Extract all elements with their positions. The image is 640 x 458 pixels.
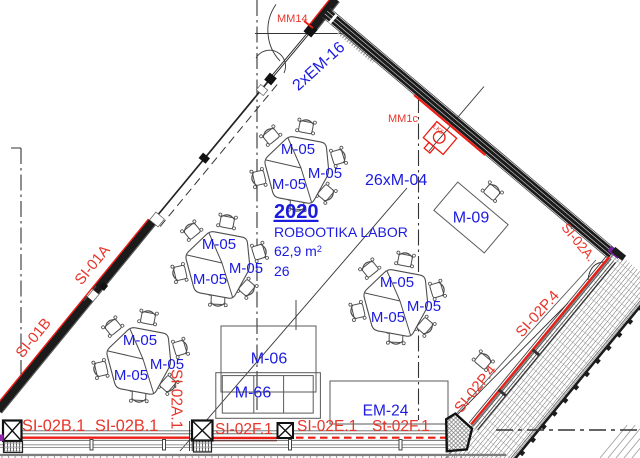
- svg-text:SI-02B.1: SI-02B.1: [22, 417, 85, 435]
- svg-text:26xM-04: 26xM-04: [365, 172, 427, 189]
- svg-text:St-02F.1: St-02F.1: [372, 418, 430, 435]
- svg-text:M-05: M-05: [229, 260, 263, 277]
- svg-text:M-05: M-05: [202, 236, 236, 253]
- svg-text:M-66: M-66: [235, 385, 272, 402]
- svg-text:SI-02F.1: SI-02F.1: [215, 421, 273, 438]
- svg-text:SI-02E.1: SI-02E.1: [297, 418, 357, 435]
- svg-text:M-05: M-05: [308, 165, 342, 182]
- svg-text:MM1c: MM1c: [388, 113, 418, 125]
- svg-text:M-05: M-05: [123, 332, 157, 349]
- svg-text:M-05: M-05: [407, 298, 441, 315]
- svg-text:62,9 m2: 62,9 m2: [274, 243, 322, 259]
- svg-text:M-05: M-05: [281, 141, 315, 158]
- svg-text:26: 26: [274, 263, 290, 279]
- svg-text:M-05: M-05: [193, 271, 227, 288]
- svg-text:M-05: M-05: [371, 309, 405, 326]
- svg-text:M-05: M-05: [272, 176, 306, 193]
- svg-text:M-09: M-09: [453, 210, 490, 227]
- svg-text:SI-02B.1: SI-02B.1: [95, 417, 158, 435]
- svg-text:2020: 2020: [274, 201, 319, 223]
- svg-text:M-05: M-05: [114, 367, 148, 384]
- svg-text:M-06: M-06: [251, 351, 288, 368]
- svg-text:SI-02A.1: SI-02A.1: [168, 369, 185, 429]
- svg-text:MM14: MM14: [277, 13, 308, 25]
- svg-text:M-05: M-05: [380, 274, 414, 291]
- svg-text:ROBOOTIKA LABOR: ROBOOTIKA LABOR: [274, 224, 408, 240]
- svg-text:EM-24: EM-24: [363, 403, 409, 420]
